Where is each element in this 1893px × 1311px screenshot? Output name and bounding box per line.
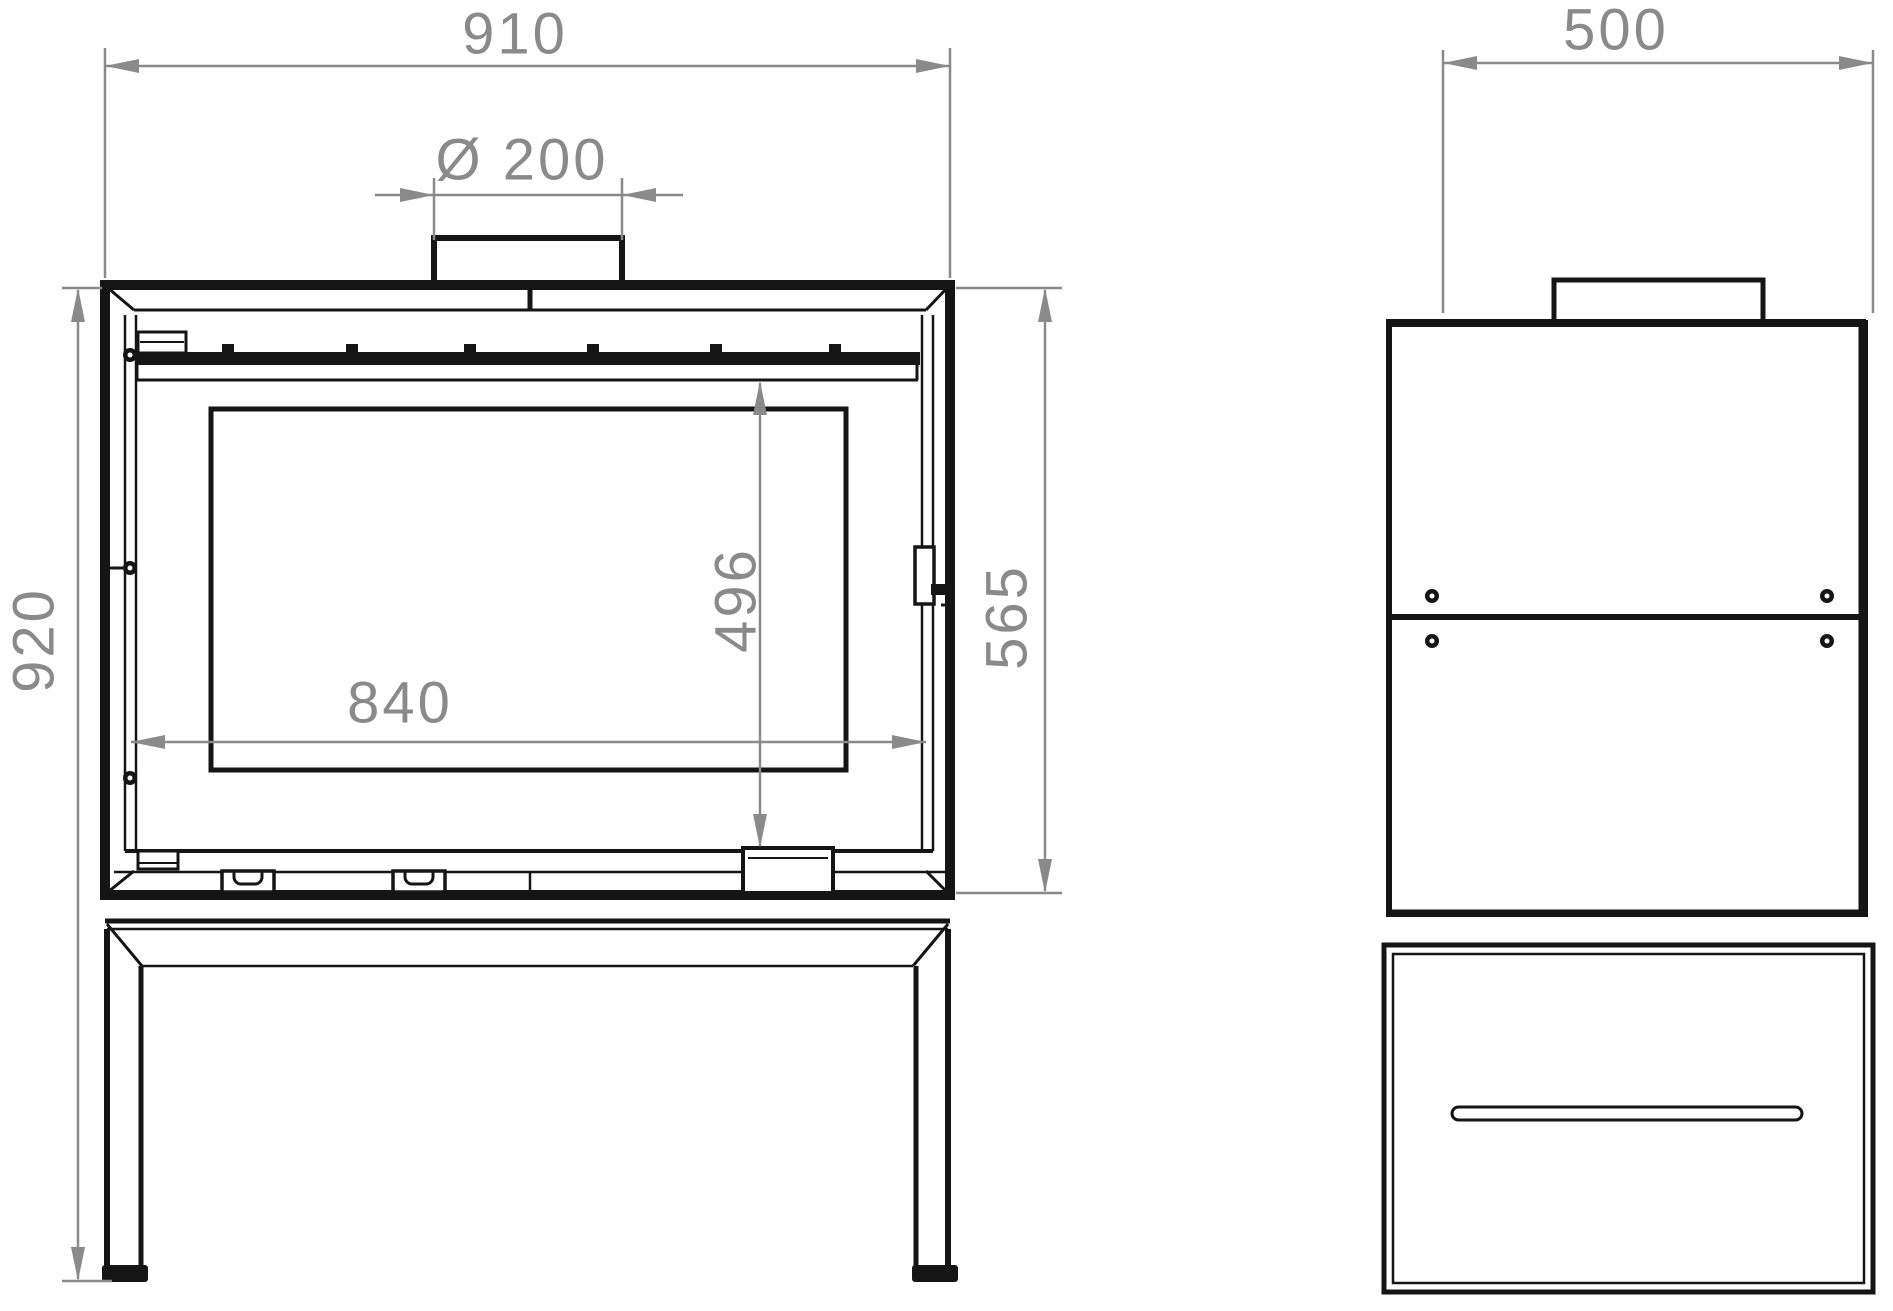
side-view xyxy=(1384,280,1873,1292)
front-view xyxy=(101,238,958,1282)
side-base xyxy=(1384,945,1873,1292)
dim-label-overall-height: 920 xyxy=(2,587,67,693)
right-foot xyxy=(912,1265,958,1282)
dim-label-body-height: 565 xyxy=(975,564,1040,670)
dim-overall-height: 920 xyxy=(2,288,113,1281)
dim-label-flue-diameter: Ø 200 xyxy=(436,128,609,193)
left-foot xyxy=(102,1265,148,1282)
dim-label-overall-width: 910 xyxy=(462,2,568,67)
dim-label-glass-width: 840 xyxy=(347,671,453,736)
base-handle-slot xyxy=(1452,1107,1802,1120)
dim-flue-diameter: Ø 200 xyxy=(375,128,683,241)
technical-drawing-page: 910 Ø 200 920 565 496 840 xyxy=(0,0,1893,1311)
stove-dimension-drawing: 910 Ø 200 920 565 496 840 xyxy=(0,0,1893,1311)
flue-collar-front xyxy=(434,238,622,287)
dim-depth: 500 xyxy=(1443,0,1873,313)
stand-front xyxy=(102,921,958,1282)
dim-label-depth: 500 xyxy=(1563,0,1669,63)
dim-body-height: 565 xyxy=(956,288,1062,893)
top-left-clip xyxy=(138,332,186,353)
dim-label-glass-height: 496 xyxy=(704,547,769,653)
